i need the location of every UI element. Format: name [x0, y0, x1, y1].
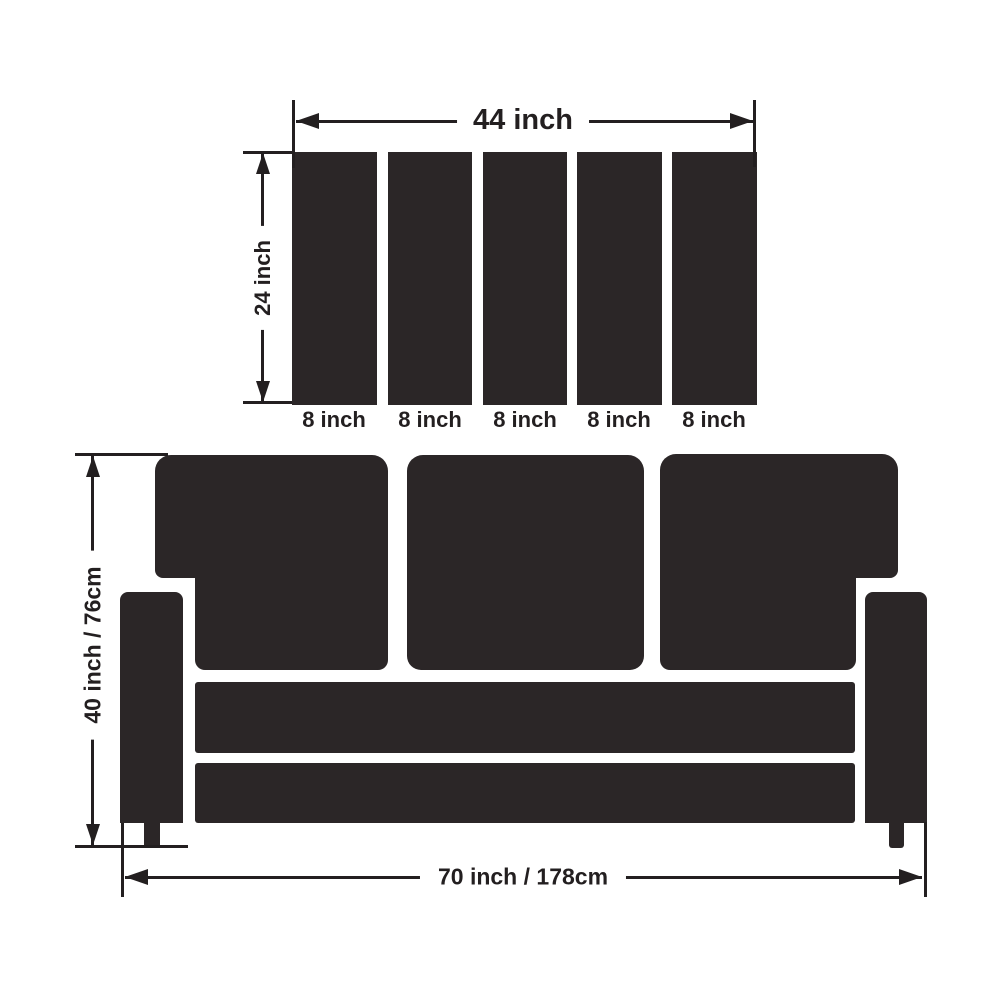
sofa-dimension-diagram: 8 inch 8 inch 8 inch 8 inch 8 inch 44 in…: [0, 0, 1000, 1000]
dimension-extension-line: [753, 100, 756, 167]
arrowhead-right-icon: [730, 113, 753, 129]
panel-height-label: 24 inch: [251, 226, 275, 330]
back-slat-3: [483, 152, 567, 405]
arrowhead-left-icon: [296, 113, 319, 129]
sofa-leg-right: [889, 823, 904, 848]
base-band: [195, 763, 855, 823]
arrowhead-down-icon: [86, 824, 100, 845]
back-cushion-middle: [407, 455, 644, 670]
slat-4-width-label: 8 inch: [587, 408, 651, 432]
slat-3-width-label: 8 inch: [493, 408, 557, 432]
arrowhead-down-icon: [256, 381, 270, 402]
back-slat-5: [672, 152, 757, 405]
back-cushion-left-lower: [195, 555, 388, 670]
slat-5-width-label: 8 inch: [682, 408, 746, 432]
panel-width-label: 44 inch: [457, 105, 589, 137]
sofa-width-label: 70 inch / 178cm: [420, 864, 626, 889]
dimension-extension-line: [75, 845, 188, 848]
back-slat-4: [577, 152, 662, 405]
back-slat-1: [292, 152, 377, 405]
arrowhead-right-icon: [899, 869, 922, 885]
back-cushion-right-lower: [660, 555, 856, 670]
armrest-right: [865, 592, 927, 823]
sofa-height-label: 40 inch / 76cm: [80, 550, 105, 739]
dimension-extension-line: [292, 100, 295, 168]
arrowhead-up-icon: [86, 456, 100, 477]
seat-cushion-band: [195, 682, 855, 753]
armrest-left: [120, 592, 183, 823]
dimension-extension-line: [924, 822, 927, 897]
back-slat-2: [388, 152, 472, 405]
arrowhead-left-icon: [125, 869, 148, 885]
arrowhead-up-icon: [256, 153, 270, 174]
dimension-extension-line: [121, 823, 124, 897]
slat-1-width-label: 8 inch: [302, 408, 366, 432]
slat-2-width-label: 8 inch: [398, 408, 462, 432]
